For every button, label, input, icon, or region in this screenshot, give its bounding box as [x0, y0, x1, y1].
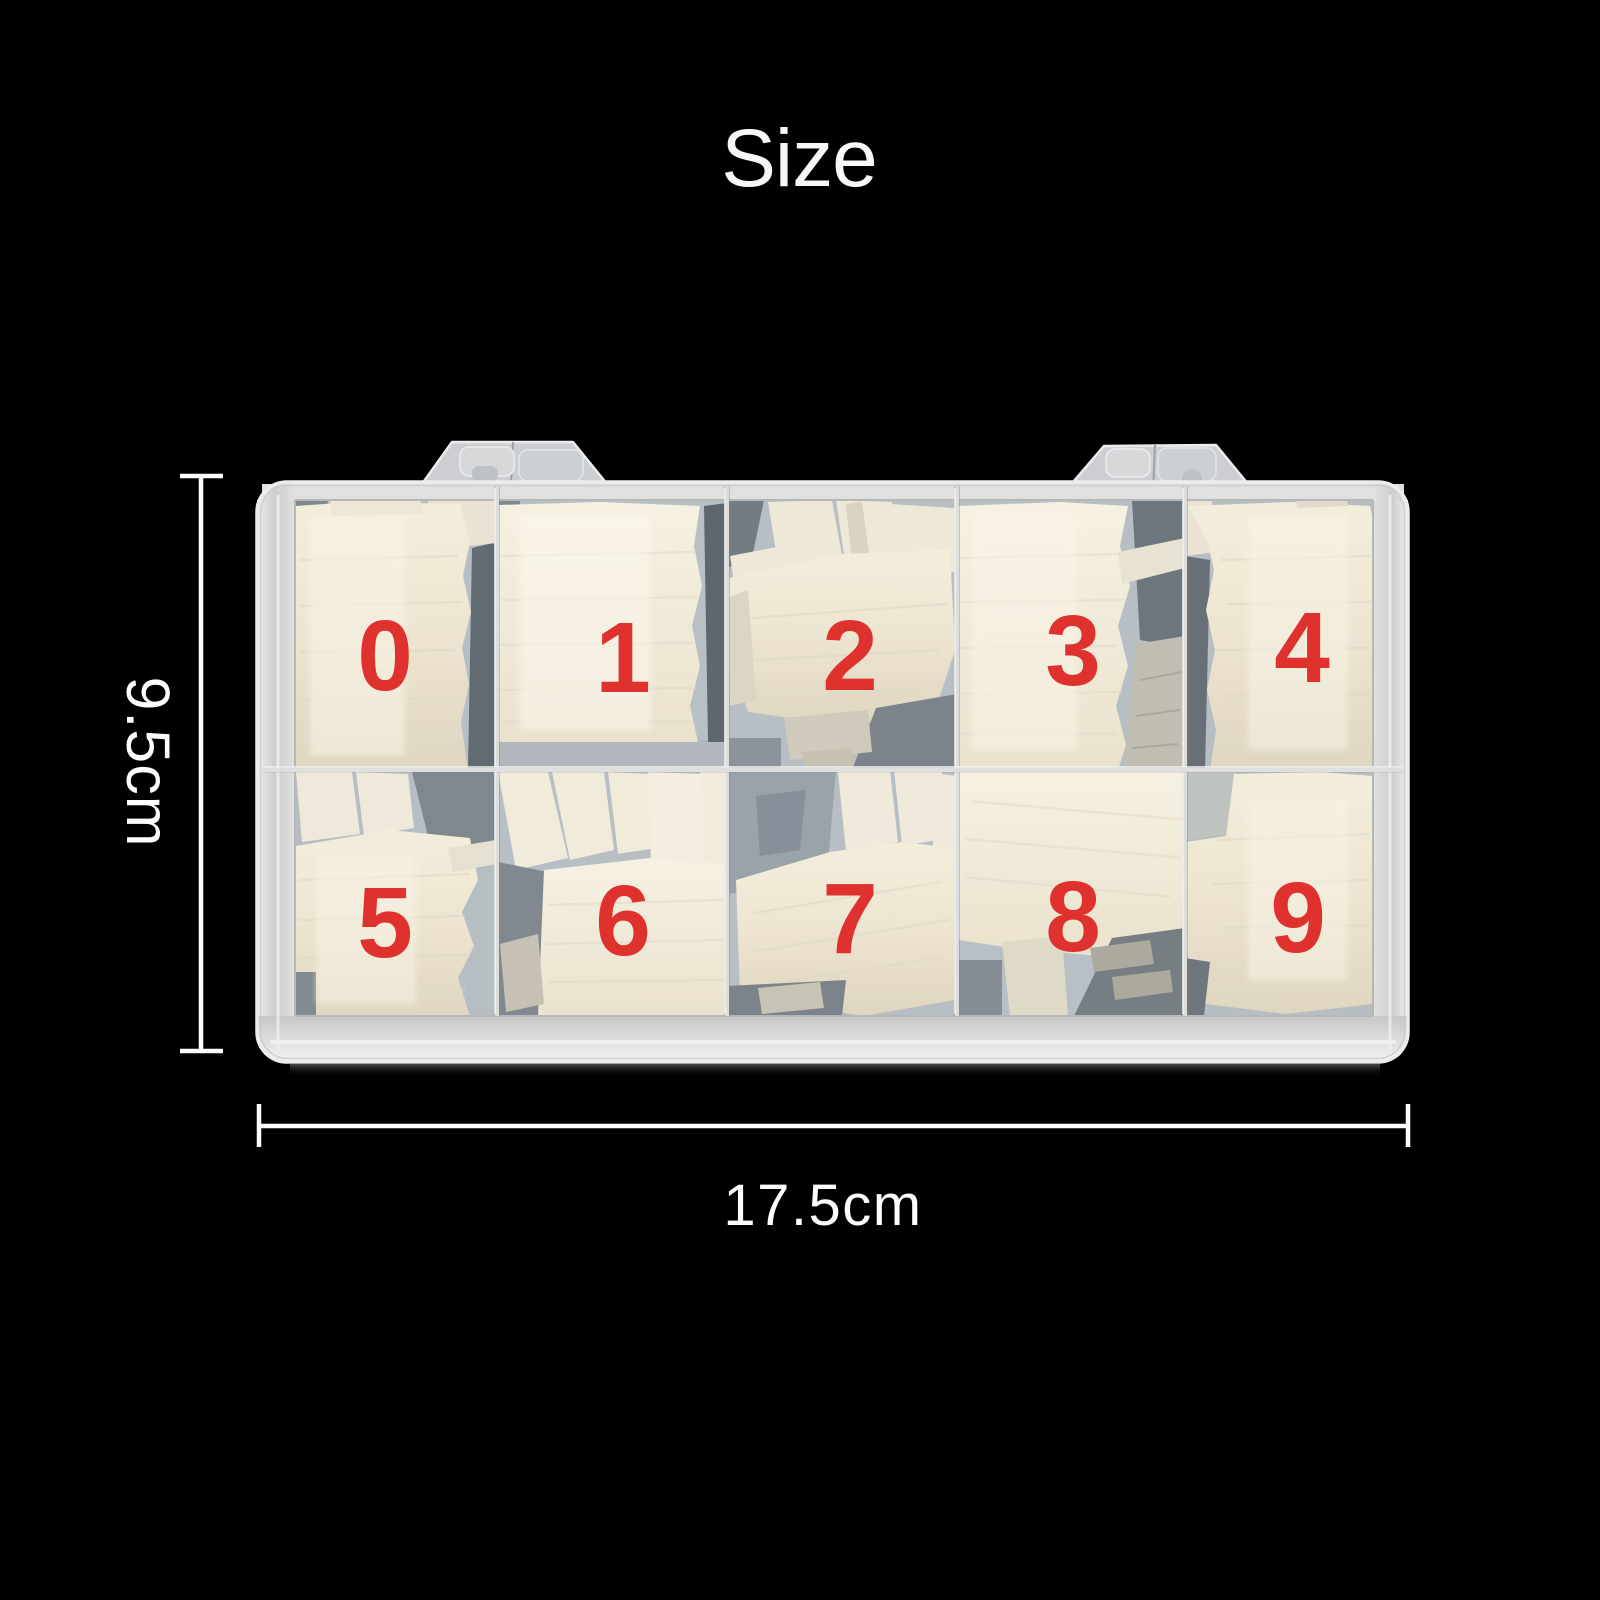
svg-text:9: 9 — [1270, 862, 1326, 974]
svg-text:5: 5 — [357, 867, 413, 979]
svg-text:3: 3 — [1045, 595, 1101, 707]
svg-text:8: 8 — [1045, 861, 1101, 973]
svg-text:7: 7 — [822, 863, 878, 975]
svg-text:1: 1 — [595, 602, 651, 714]
svg-text:6: 6 — [595, 865, 651, 977]
svg-text:2: 2 — [822, 600, 878, 712]
svg-text:17.5cm: 17.5cm — [723, 1173, 922, 1238]
svg-text:Size: Size — [721, 113, 877, 204]
svg-text:9.5cm: 9.5cm — [114, 676, 182, 847]
svg-text:4: 4 — [1274, 592, 1330, 704]
svg-text:0: 0 — [357, 600, 413, 712]
